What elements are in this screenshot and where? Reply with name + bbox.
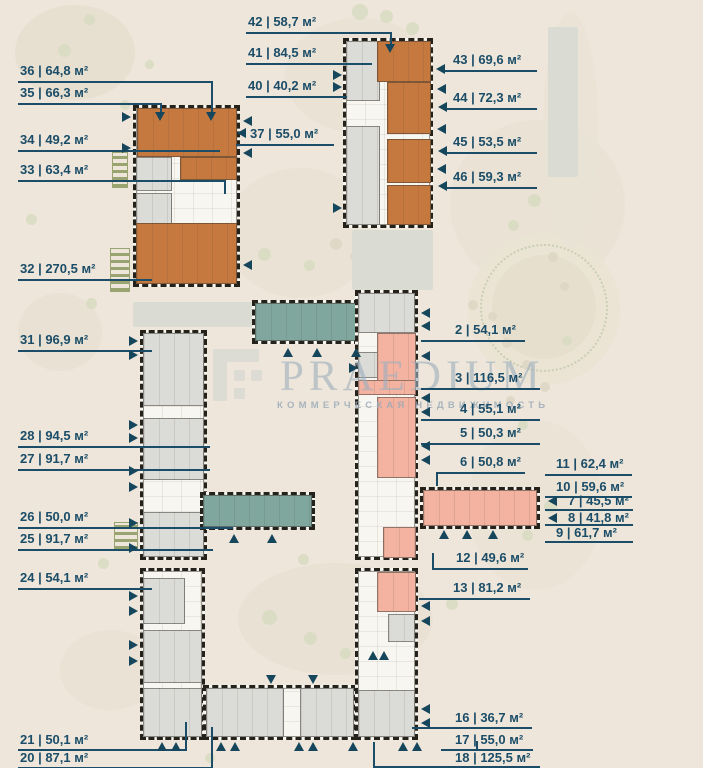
entrance-arrow-icon: [462, 530, 472, 539]
entrance-arrow-icon: [283, 348, 293, 357]
entrance-arrow-icon: [294, 742, 304, 751]
entrance-arrow-icon: [129, 482, 138, 492]
entrance-arrow-icon: [129, 433, 138, 443]
entrance-arrow-icon: [437, 84, 446, 94]
entrance-arrow-icon: [230, 742, 240, 751]
site-plan-canvas: PRAEDIUM КОММЕРЧЕСКАЯ НЕДВИЖИМОСТЬ 42 | …: [0, 0, 703, 768]
entrance-arrow-icon: [333, 203, 342, 213]
entrance-arrow-icon: [266, 675, 276, 684]
entrance-arrow-icon: [243, 148, 252, 158]
entrance-arrow-icon: [312, 348, 322, 357]
entrance-arrow-icon: [216, 742, 226, 751]
entrance-arrow-icon: [437, 124, 446, 134]
entrance-arrow-icon: [349, 363, 358, 373]
entrance-arrow-icon: [308, 675, 318, 684]
entrance-arrow-icon: [421, 441, 430, 451]
entrance-arrow-icon: [421, 351, 430, 361]
entrance-arrow-icon: [421, 616, 430, 626]
entrance-arrow-icon: [439, 530, 449, 539]
entrance-arrow-icon: [129, 606, 138, 616]
entrance-arrow-icon: [129, 336, 138, 346]
entrance-arrow-icon: [308, 742, 318, 751]
entrance-arrow-icon: [243, 260, 252, 270]
entrance-arrow-icon: [421, 308, 430, 318]
entrance-arrow-icon: [129, 350, 138, 360]
entrance-arrow-icon: [122, 143, 131, 153]
entrance-arrow-icon: [129, 543, 138, 553]
entrance-arrow-icon: [488, 530, 498, 539]
entrance-arrow-icon: [333, 70, 342, 80]
entrance-arrow-icon: [229, 534, 239, 543]
entrance-arrow-icon: [437, 164, 446, 174]
entrance-arrow-icon: [421, 393, 430, 403]
entrance-arrow-icon: [368, 651, 378, 660]
entrance-arrow-icon: [267, 534, 277, 543]
entrance-arrow-icon: [421, 455, 430, 465]
entrance-arrow-icon: [421, 704, 430, 714]
entrance-arrow-icon: [379, 651, 389, 660]
entrance-arrow-icon: [129, 656, 138, 666]
entrance-arrow-icon: [351, 348, 361, 357]
entrance-arrow-icon: [129, 640, 138, 650]
entrance-layer: [0, 0, 703, 768]
entrance-arrow-icon: [421, 407, 430, 417]
entrance-arrow-icon: [421, 321, 430, 331]
entrance-arrow-icon: [421, 718, 430, 728]
entrance-arrow-icon: [421, 601, 430, 611]
entrance-arrow-icon: [333, 82, 342, 92]
entrance-arrow-icon: [122, 112, 131, 122]
entrance-arrow-icon: [129, 518, 138, 528]
entrance-arrow-icon: [157, 742, 167, 751]
entrance-arrow-icon: [129, 466, 138, 476]
entrance-arrow-icon: [129, 591, 138, 601]
entrance-arrow-icon: [348, 742, 358, 751]
entrance-arrow-icon: [412, 742, 422, 751]
entrance-arrow-icon: [171, 742, 181, 751]
entrance-arrow-icon: [243, 116, 252, 126]
entrance-arrow-icon: [129, 420, 138, 430]
entrance-arrow-icon: [398, 742, 408, 751]
